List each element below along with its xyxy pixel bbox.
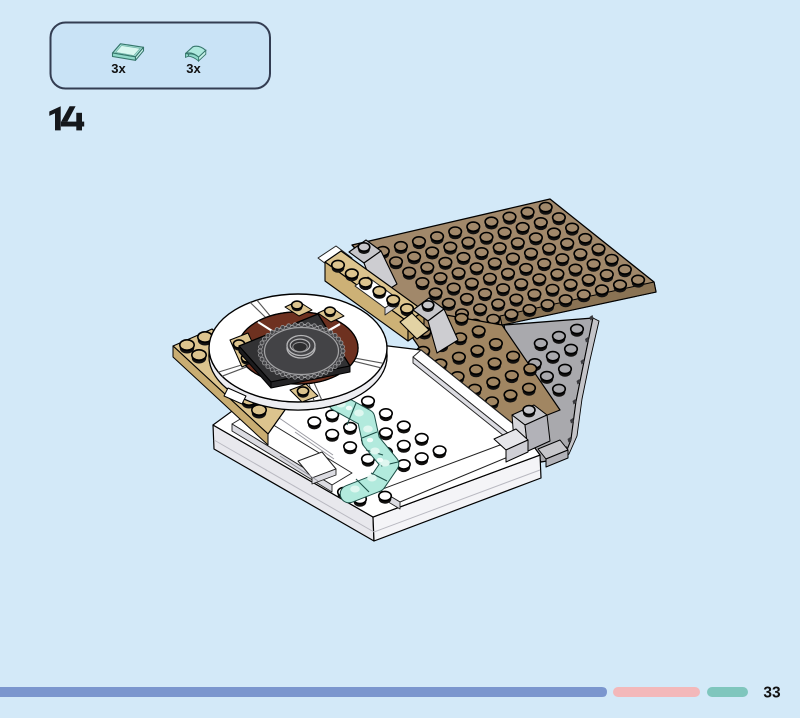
svg-text:33: 33: [763, 685, 781, 702]
svg-text:3x: 3x: [186, 61, 201, 76]
svg-text:3x: 3x: [111, 61, 126, 76]
